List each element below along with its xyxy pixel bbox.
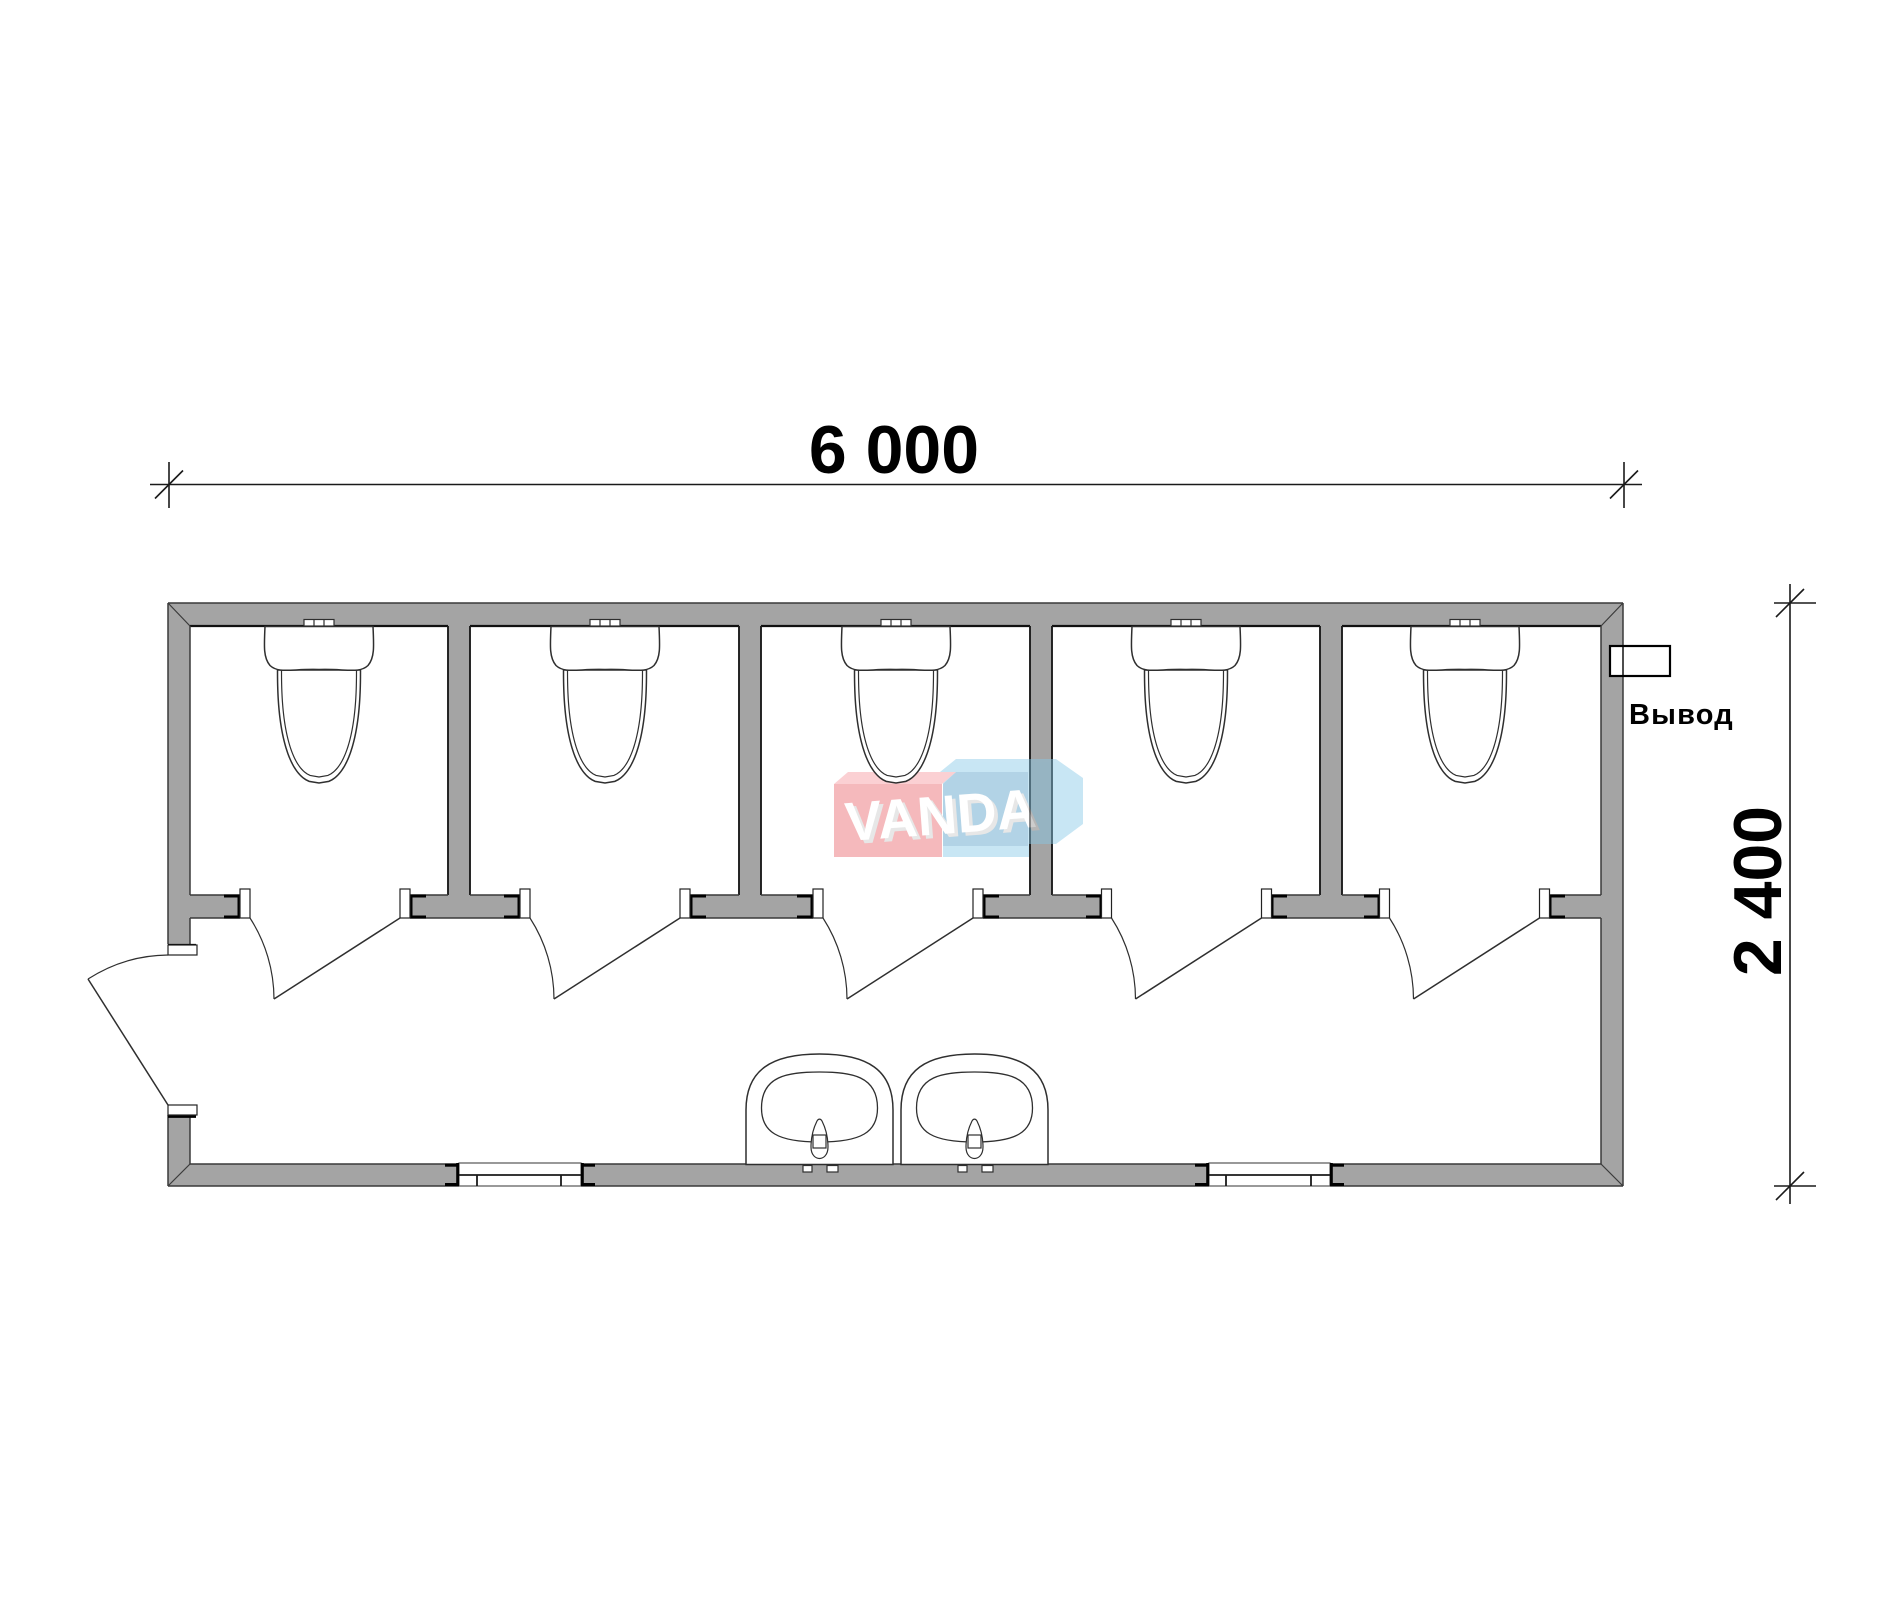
svg-text:2 400: 2 400 xyxy=(1720,806,1796,976)
svg-text:6 000: 6 000 xyxy=(809,412,979,488)
svg-text:Вывод: Вывод xyxy=(1629,699,1734,731)
